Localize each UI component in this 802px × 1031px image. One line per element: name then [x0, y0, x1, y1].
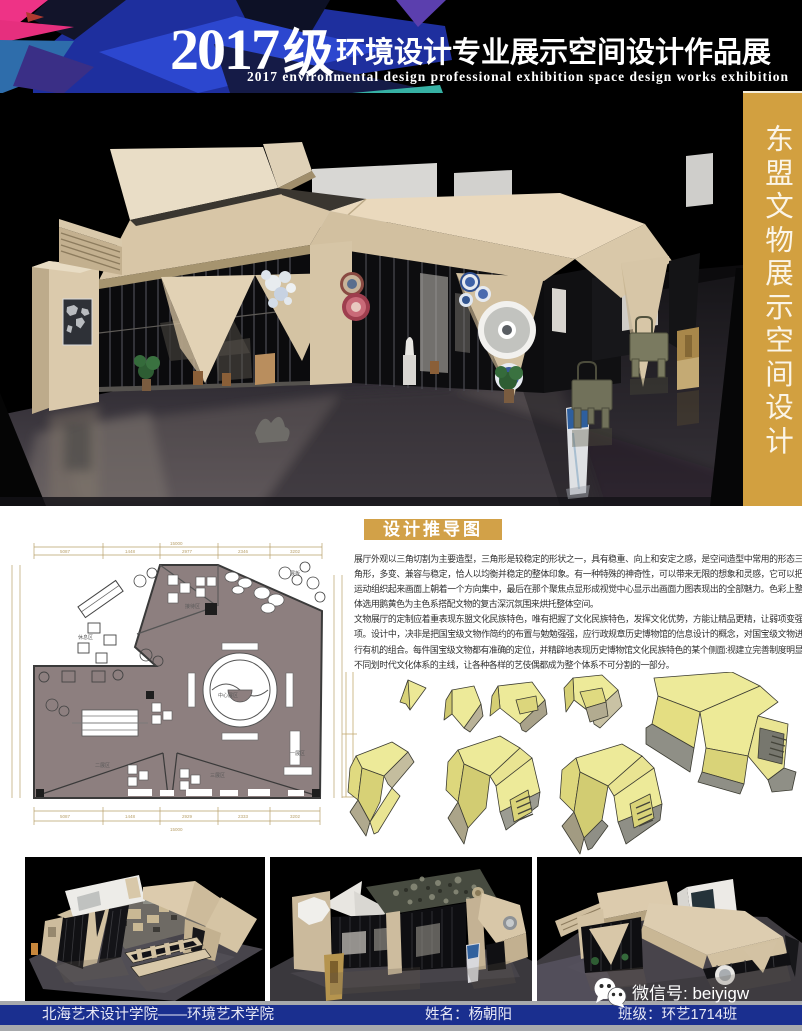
svg-text:三展区: 三展区: [210, 773, 225, 779]
svg-text:微信号: beiyigw: 微信号: beiyigw: [632, 984, 750, 1003]
svg-text:5087: 5087: [60, 814, 71, 819]
svg-text:中心展区: 中心展区: [218, 692, 238, 699]
svg-text:接待区: 接待区: [185, 603, 200, 610]
svg-text:15000: 15000: [170, 541, 183, 546]
svg-text:3202: 3202: [290, 814, 301, 819]
svg-text:2346: 2346: [238, 549, 249, 554]
svg-text:1448: 1448: [125, 814, 136, 819]
svg-text:2929: 2929: [182, 814, 193, 819]
svg-text:2333: 2333: [238, 814, 249, 819]
svg-text:休息区: 休息区: [78, 634, 93, 641]
svg-text:1448: 1448: [125, 549, 136, 554]
svg-text:3202: 3202: [290, 549, 301, 554]
svg-text:环境设计专业展示空间设计作品展: 环境设计专业展示空间设计作品展: [336, 35, 771, 69]
svg-text:二展区: 二展区: [95, 763, 110, 769]
svg-text:展板: 展板: [290, 570, 300, 577]
svg-text:5087: 5087: [60, 549, 71, 554]
svg-text:15000: 15000: [170, 827, 183, 832]
svg-text:一展区: 一展区: [290, 751, 305, 757]
svg-text:2977: 2977: [182, 549, 193, 554]
svg-text:2017 environmental design prof: 2017 environmental design professional e…: [247, 69, 789, 84]
